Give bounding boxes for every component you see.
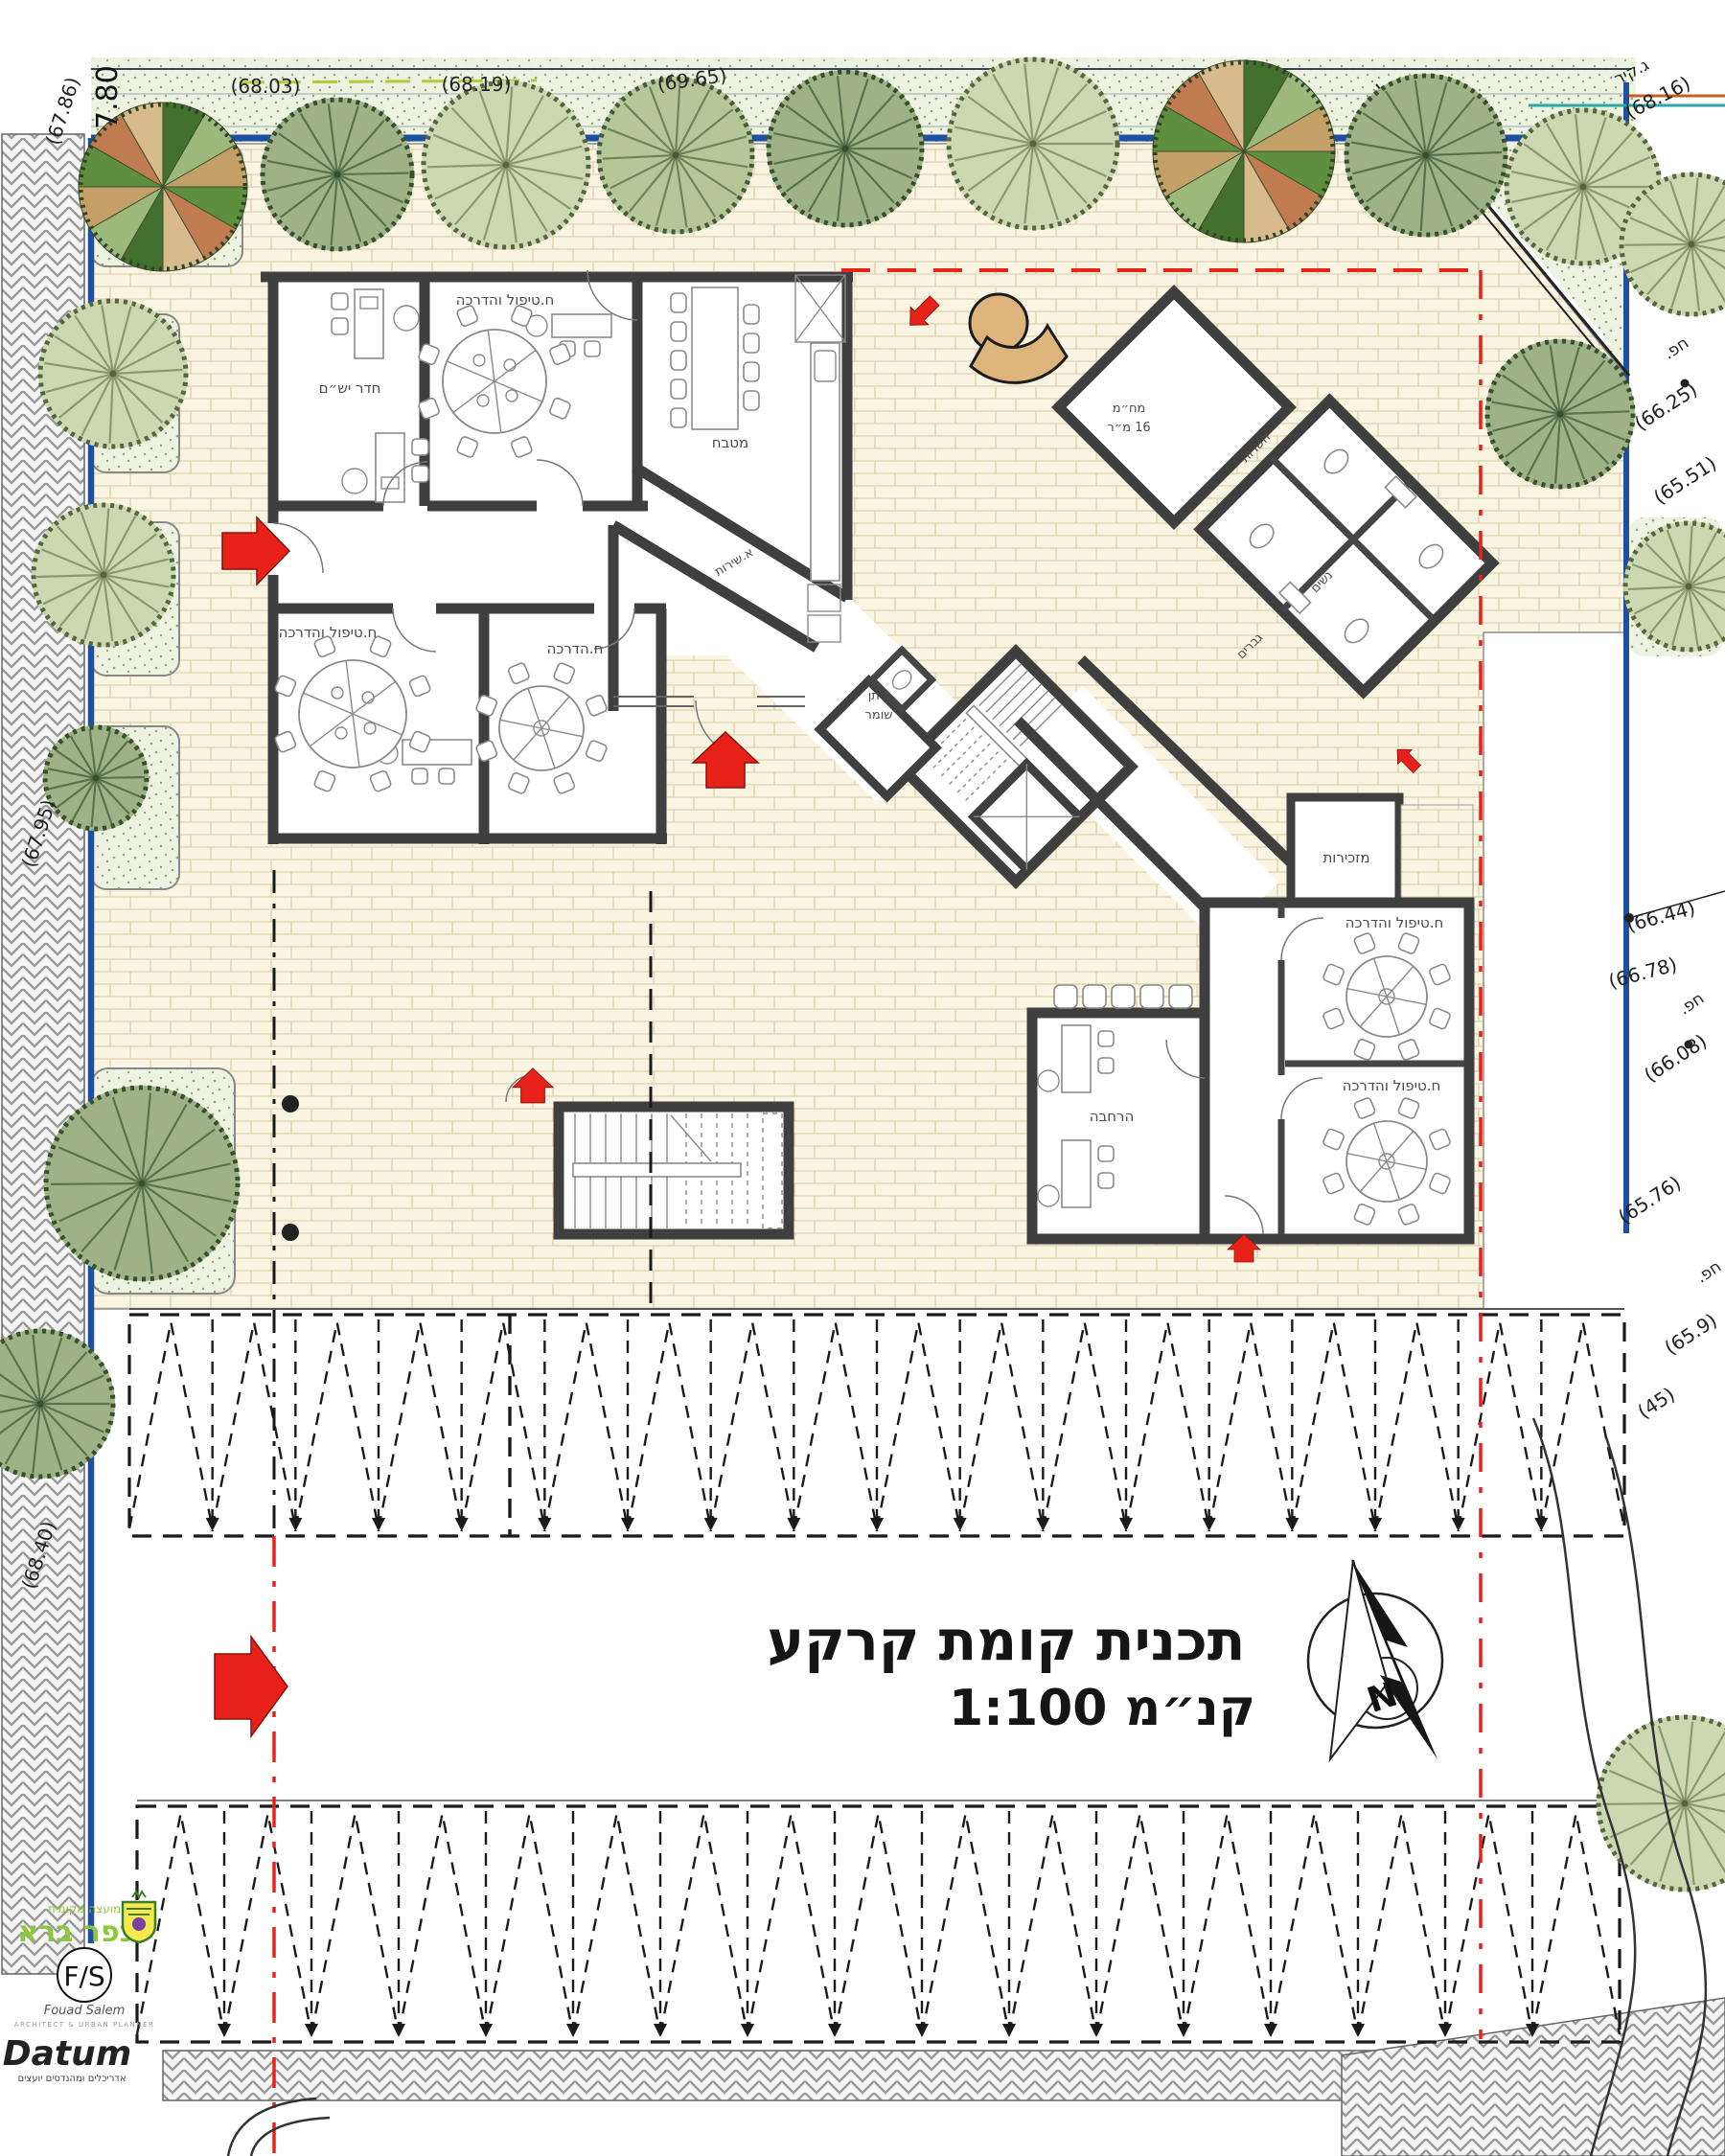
- tree-icon: [767, 70, 924, 227]
- room-label-secretariat: מזכירות: [1322, 849, 1369, 866]
- plan-title: תכנית קומת קרקע: [767, 1608, 1245, 1673]
- fs-initials: F/S: [63, 1961, 104, 1992]
- tree-icon: [422, 80, 590, 249]
- room-label-kitchen: מטבח: [712, 434, 748, 451]
- parking-row: [129, 1315, 1624, 1536]
- expansion-room: [1032, 1013, 1205, 1239]
- parking-row: [137, 1806, 1620, 2042]
- elev-r6: (65.9): [1660, 1309, 1721, 1360]
- tree-icon: [43, 725, 149, 831]
- room-label-shelter-1: מח״מ: [1113, 401, 1146, 416]
- council-name-small: מועצה מקומית: [48, 1902, 121, 1915]
- room-label-treatment-3: ח.טיפול והדרכה: [1345, 914, 1444, 931]
- room-label-shelter-2: 16 מ״ר: [1107, 421, 1150, 435]
- elev-r7: (45): [1633, 1383, 1679, 1423]
- dim-780: 7.80: [91, 65, 125, 129]
- elev-r1b: (65.51): [1649, 451, 1720, 509]
- datum-name: Datum: [3, 2034, 132, 2074]
- tree-icon: [597, 77, 754, 234]
- external-staircase: [559, 1107, 789, 1234]
- tree-icon: [947, 57, 1119, 230]
- room-label-treatment-2: ח.טיפול והדרכה: [279, 624, 378, 641]
- room-label-guard-1: ביתן: [868, 689, 890, 703]
- datum-logo: Datum אדריכלים ומהנדסים יועצים: [3, 2034, 132, 2084]
- room-label-treatment-1: ח.טיפול והדרכה: [456, 291, 555, 309]
- yard-label-1: חפ.: [1660, 333, 1692, 364]
- room-label-expansion: הרחבה: [1090, 1108, 1135, 1125]
- palm-tree-icon: [1153, 60, 1335, 242]
- tree-icon: [1485, 339, 1635, 489]
- site-plan-drawing: חדר יש״ם ח.טיפול והדרכה מטבח א.שירות ח.ט…: [0, 0, 1725, 2156]
- tree-icon: [38, 299, 188, 448]
- datum-subtitle: אדריכלים ומהנדסים יועצים: [17, 2074, 126, 2084]
- council-name-big: כפר ברא: [17, 1915, 135, 1949]
- floor-plan-sheet: חדר יש״ם ח.טיפול והדרכה מטבח א.שירות ח.ט…: [0, 0, 1725, 2156]
- tree-icon: [261, 98, 414, 251]
- room-label-guard-2: שומר: [865, 708, 893, 722]
- council-emblem-icon: [123, 1892, 155, 1942]
- yard-label-3: חפ.: [1692, 1257, 1725, 1288]
- fs-signature: Fouad Salem: [44, 2004, 126, 2018]
- fs-subtitle: ARCHITECT & URBAN PLANNER: [14, 2021, 155, 2029]
- tree-icon: [44, 1086, 240, 1281]
- yard-label-2: חפ.: [1675, 989, 1708, 1020]
- elev-top-2: (68.19): [442, 73, 512, 96]
- room-label-guidance: ח.הדרכה: [547, 640, 604, 657]
- plan-scale: קנ״מ 1:100: [949, 1680, 1255, 1737]
- north-compass: N: [1308, 1558, 1442, 1759]
- tree-icon: [1597, 1715, 1725, 1892]
- tree-icon: [1345, 74, 1507, 237]
- elev-top-1: (68.03): [231, 75, 301, 98]
- elev-r4: (66.08): [1640, 1029, 1711, 1087]
- elev-r1a: (66.25): [1630, 378, 1701, 435]
- tree-icon: [0, 1329, 115, 1479]
- tree-icon: [32, 503, 175, 647]
- room-label-meeting: חדר יש״ם: [319, 379, 381, 397]
- elev-r3: (66.78): [1606, 952, 1680, 993]
- title-block: תכנית קומת קרקע קנ״מ 1:100: [767, 1608, 1255, 1737]
- room-label-treatment-4: ח.טיפול והדרכה: [1343, 1077, 1441, 1094]
